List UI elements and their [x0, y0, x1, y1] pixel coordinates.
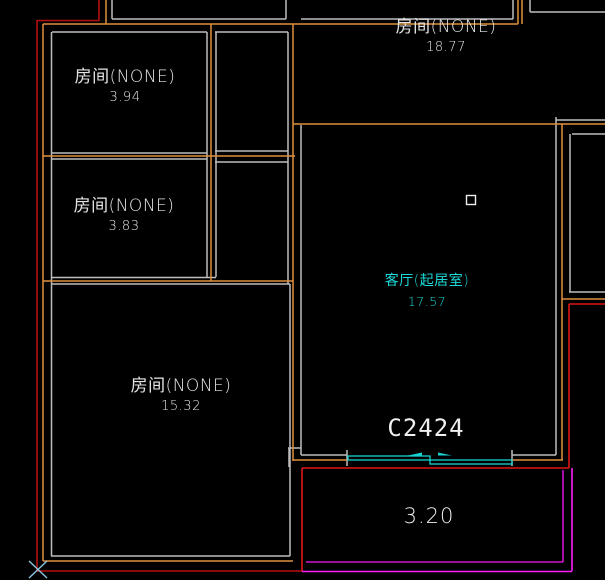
grip-square-marker[interactable] — [467, 196, 476, 205]
room-area: 3.94 — [75, 92, 176, 104]
room-name: 房间(NONE) — [75, 67, 176, 88]
balcony-area-label: 3.20 — [404, 507, 455, 526]
room-name: 客厅(起居室) — [385, 273, 469, 290]
room-area: 18.77 — [396, 42, 497, 54]
slide-arrow-right — [434, 453, 452, 456]
room-area: 17.57 — [385, 296, 469, 308]
room-label-bottom-left: 房间(NONE) 15.32 — [131, 376, 232, 413]
room-label-living-room: 客厅(起居室) 17.57 — [385, 273, 469, 308]
x-point-marker — [29, 561, 47, 578]
window-tag-label: C2424 — [387, 415, 464, 441]
sliding-window-symbol — [348, 453, 512, 465]
room-area: 15.32 — [131, 401, 232, 413]
room-name: 房间(NONE) — [396, 17, 497, 38]
room-name: 房间(NONE) — [74, 196, 175, 217]
room-label-top-left: 房间(NONE) 3.94 — [75, 67, 176, 104]
slide-arrow-left — [408, 453, 426, 456]
room-area: 3.83 — [74, 221, 175, 233]
room-label-mid-left: 房间(NONE) 3.83 — [74, 196, 175, 233]
room-label-top-center: 房间(NONE) 18.77 — [396, 17, 497, 54]
room-name: 房间(NONE) — [131, 376, 232, 397]
cad-canvas[interactable]: 房间(NONE) 3.94 房间(NONE) 3.83 房间(NONE) 18.… — [0, 0, 605, 580]
